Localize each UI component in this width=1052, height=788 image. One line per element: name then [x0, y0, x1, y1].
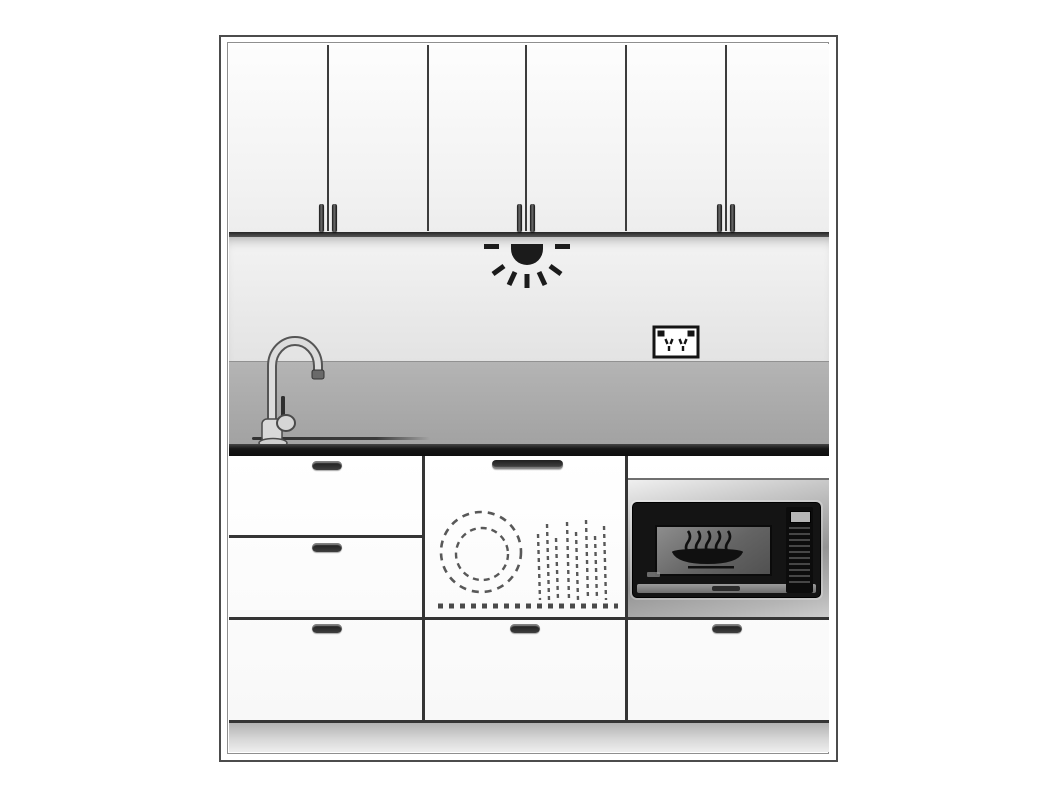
upper-door-handle	[517, 204, 522, 232]
upper-door-divider	[327, 45, 329, 231]
light-rays-icon	[474, 236, 580, 294]
upper-door-divider	[525, 45, 527, 231]
drawer-divider-line	[229, 535, 423, 538]
kitchen-elevation-drawing	[0, 0, 1052, 788]
countertop	[229, 444, 829, 456]
microwave-logo-mark	[647, 572, 660, 577]
upper-door-divider	[427, 45, 429, 231]
power-outlet-icon	[652, 325, 700, 359]
drawer-handle	[712, 624, 742, 633]
dish-with-steam-icon	[655, 525, 768, 572]
upper-door-handle	[332, 204, 337, 232]
upper-door-handle	[730, 204, 735, 232]
drawer-handle	[312, 543, 342, 552]
drawer-divider-line	[229, 720, 829, 723]
dishwasher-handle	[492, 460, 563, 469]
upper-door-handle	[530, 204, 535, 232]
gooseneck-faucet	[236, 326, 336, 446]
upper-door-divider	[725, 45, 727, 231]
drawer-divider-line	[229, 617, 829, 620]
base-cabinet-divider	[422, 456, 425, 721]
microwave-brand-mark	[712, 586, 740, 591]
upper-door-divider	[625, 45, 627, 231]
drawer-handle	[510, 624, 540, 633]
base-cabinet-divider	[625, 456, 628, 721]
microwave-display	[790, 511, 811, 523]
microwave-button-rows	[789, 527, 810, 587]
drawer-handle	[312, 461, 342, 470]
upper-door-handle	[717, 204, 722, 232]
dashed-plate-and-cutlery-icon	[428, 496, 628, 616]
upper-door-handle	[319, 204, 324, 232]
drawer-handle	[312, 624, 342, 633]
plinth	[229, 722, 829, 752]
